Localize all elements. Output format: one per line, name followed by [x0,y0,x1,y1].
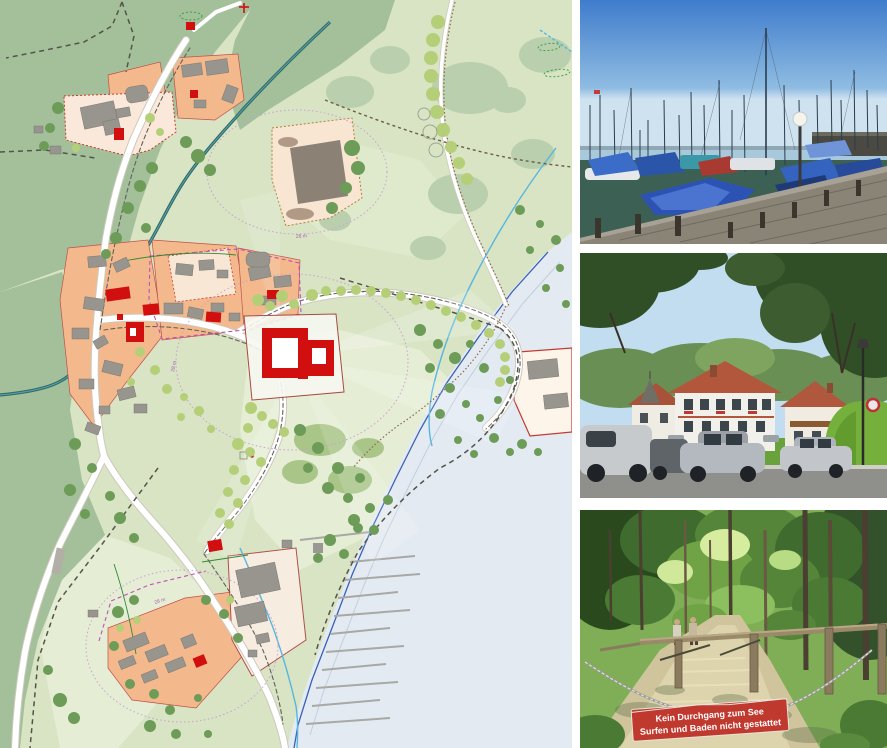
flag [594,90,600,94]
riding-hall [290,140,348,204]
village-street-photo [580,253,887,498]
traffic-sign [867,399,879,411]
boat-shed [313,543,323,553]
measure-label: 28 m [296,233,308,240]
forest-path-photo: Kein Durchgang zum See Surfen und Baden … [580,510,887,748]
site-plan-svg: 28 m 28 m 28 m [0,0,572,748]
lamp-globe [793,112,807,126]
marina-photo [580,0,887,244]
site-plan-map: 28 m 28 m 28 m [0,0,572,748]
figure-canvas: 28 m 28 m 28 m [0,0,887,748]
castle-complex [244,314,344,400]
